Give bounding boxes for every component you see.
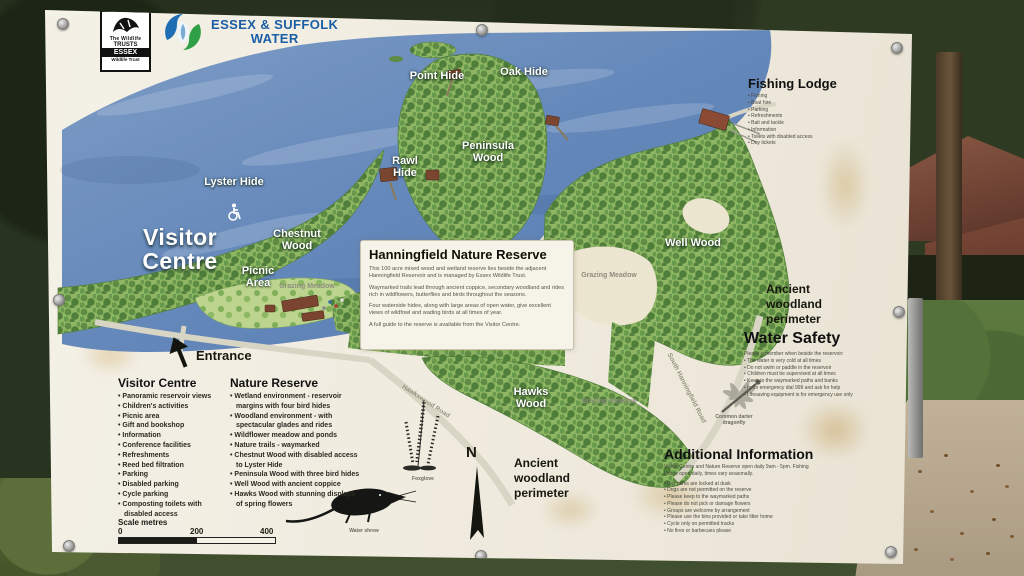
label-well-wood: Well Wood <box>664 237 722 249</box>
label-rawl-hide: Rawl Hide <box>382 155 428 180</box>
label-north: N <box>466 444 477 461</box>
mammal-caption: Water shrew <box>336 528 392 534</box>
visitor-centre-item: Disabled parking <box>118 480 230 490</box>
nature-reserve-items: Wetland environment - reservoir margins … <box>230 392 362 510</box>
label-visitor-centre: Visitor Centre <box>116 226 244 274</box>
visitor-centre-facilities: Visitor Centre Panoramic reservoir views… <box>118 376 230 519</box>
nature-reserve-item: Peninsula Wood with three bird hides <box>230 470 362 480</box>
nature-reserve-item: Hawks Wood with stunning displays of spr… <box>230 490 362 510</box>
photo-of-sign: The Wildlife TRUSTS ESSEX Wildlife Trust… <box>0 0 1024 576</box>
fishing-lodge-section: Fishing Lodge FishingBoat hireParkingRef… <box>748 76 873 147</box>
label-grazing-meadow-south: Grazing Meadow <box>580 398 638 407</box>
fishing-lodge-title: Fishing Lodge <box>748 76 873 91</box>
visitor-centre-item: Information <box>118 431 230 441</box>
visitor-centre-item: Cycle parking <box>118 490 230 500</box>
panel-paragraph: Four waterside hides, along with large a… <box>369 303 565 318</box>
label-entrance: Entrance <box>196 348 252 363</box>
water-safety-item: Lifesaving equipment is for emergency us… <box>744 392 886 399</box>
nature-reserve-item: Wetland environment - reservoir margins … <box>230 392 362 412</box>
description-panel: Hanningfield Nature Reserve This 100 acr… <box>360 240 574 350</box>
water-safety-item: Keep to the waymarked paths and banks <box>744 378 886 385</box>
water-safety-section: Water Safety Please remember when beside… <box>744 330 886 398</box>
wheelchair-icon <box>226 203 242 221</box>
island <box>410 42 456 58</box>
visitor-centre-list-title: Visitor Centre <box>118 376 230 390</box>
visitor-centre-item: Panoramic reservoir views <box>118 392 230 402</box>
nature-reserve-item: Chestnut Wood with disabled access to Ly… <box>230 451 362 471</box>
additional-info-item: Groups are welcome by arrangement <box>664 508 814 515</box>
panel-paragraph: Waymarked trails lead through ancient co… <box>369 285 565 300</box>
label-peninsula-wood: Peninsula Wood <box>448 140 528 165</box>
label-chestnut-wood: Chestnut Wood <box>258 228 336 253</box>
tree-trunk <box>936 52 962 332</box>
scale-label: Scale metres <box>118 518 288 527</box>
information-sign-board: The Wildlife TRUSTS ESSEX Wildlife Trust… <box>0 0 1024 576</box>
grazing-meadow-east <box>565 247 657 326</box>
wt-sub: Wildlife Trust <box>111 57 139 62</box>
nature-reserve-item: Woodland environment - with spectacular … <box>230 412 362 432</box>
nature-reserve-item: Well Wood with ancient coppice <box>230 480 362 490</box>
nature-reserve-list-title: Nature Reserve <box>230 376 362 390</box>
scale-tick-0: 0 <box>118 527 122 536</box>
label-hawks-wood: Hawks Wood <box>498 386 564 411</box>
label-ancient-woodland-south: Ancient woodland perimeter <box>514 456 594 501</box>
fishing-lodge-item: Information <box>748 127 873 134</box>
water-safety-item: In an emergency dial 999 and ask for hel… <box>744 385 886 392</box>
fishing-lodge-item: Parking <box>748 107 873 114</box>
water-safety-intro: Please remember when beside the reservoi… <box>744 351 886 358</box>
visitor-centre-item: Conference facilities <box>118 441 230 451</box>
bolt <box>891 42 903 54</box>
additional-info-item: Dogs are not permitted on the reserve <box>664 487 814 494</box>
water-safety-item: Do not swim or paddle in the reservoir <box>744 365 886 372</box>
bolt <box>893 306 905 318</box>
bolt <box>57 18 69 30</box>
bolt <box>53 294 65 306</box>
islet <box>389 56 403 62</box>
additional-info-section: Additional Information Visitor Centre an… <box>664 446 814 535</box>
panel-paragraph: A full guide to the reserve is available… <box>369 322 565 329</box>
dragonfly-caption: Common darter dragonfly <box>706 414 762 426</box>
scale-bar-graphic <box>118 537 276 544</box>
additional-info-title: Additional Information <box>664 446 814 462</box>
water-safety-item: Children must be supervised at all times <box>744 371 886 378</box>
label-point-hide: Point Hide <box>408 70 466 82</box>
additional-info-item: Please do not pick or damage flowers <box>664 501 814 508</box>
panel-paragraph: This 100 acre mixed wood and wetland res… <box>369 266 565 281</box>
water-safety-items: The water is very cold at all timesDo no… <box>744 358 886 399</box>
visitor-centre-item: Picnic area <box>118 412 230 422</box>
nature-reserve-item: Nature trails - waymarked <box>230 441 362 451</box>
north-arrow <box>470 466 484 540</box>
scale-tick-200: 200 <box>190 527 203 536</box>
fishing-lodge-item: Refreshments <box>748 113 873 120</box>
scale-bar: Scale metres 0 200 400 <box>118 518 288 544</box>
additional-info-item: No fires or barbecues please <box>664 528 814 535</box>
label-oak-hide: Oak Hide <box>498 66 550 78</box>
visitor-centre-item: Composting toilets with disabled access <box>118 500 230 520</box>
bolt <box>885 546 897 558</box>
fishing-lodge-item: Fishing <box>748 93 873 100</box>
water-swirl-icon <box>163 12 203 52</box>
fishing-lodge-item: Toilets with disabled access <box>748 134 873 141</box>
label-lyster-hide: Lyster Hide <box>202 176 266 188</box>
additional-info-item: Car parks are locked at dusk <box>664 481 814 488</box>
water-safety-title: Water Safety <box>744 330 886 348</box>
nature-reserve-features: Nature Reserve Wetland environment - res… <box>230 376 362 510</box>
additional-info-intro: Visitor Centre and Nature Reserve open d… <box>664 464 814 478</box>
fishing-lodge-items: FishingBoat hireParkingRefreshmentsBait … <box>748 93 873 147</box>
panel-title: Hanningfield Nature Reserve <box>369 247 565 262</box>
panel-paragraphs: This 100 acre mixed wood and wetland res… <box>369 266 565 329</box>
visitor-centre-item: Children's activities <box>118 402 230 412</box>
visitor-centre-items: Panoramic reservoir viewsChildren's acti… <box>118 392 230 519</box>
label-grazing-meadow-west: Grazing Meadow <box>278 283 336 292</box>
label-ancient-woodland-east: Ancient woodland perimeter <box>766 282 846 327</box>
fishing-lodge-item: Day tickets <box>748 140 873 147</box>
badger-icon <box>111 14 141 36</box>
fishing-lodge-item: Boat hire <box>748 100 873 107</box>
additional-info-item: Please use the bins provided or take lit… <box>664 514 814 521</box>
bolt <box>63 540 75 552</box>
additional-info-item: Please keep to the waymarked paths <box>664 494 814 501</box>
additional-info-item: Cycle only on permitted tracks <box>664 521 814 528</box>
wt-region: ESSEX <box>102 48 149 57</box>
visitor-centre-item: Parking <box>118 470 230 480</box>
plant-caption: Foxglove <box>398 476 448 482</box>
esw-water: WATER <box>211 32 338 46</box>
visitor-centre-item: Reed bed filtration <box>118 461 230 471</box>
bolt <box>476 24 488 36</box>
visitor-centre-item: Refreshments <box>118 451 230 461</box>
water-safety-item: The water is very cold at all times <box>744 358 886 365</box>
fishing-lodge-item: Bait and tackle <box>748 120 873 127</box>
additional-info-items: Car parks are locked at duskDogs are not… <box>664 481 814 535</box>
label-grazing-meadow-east: Grazing Meadow <box>580 272 638 281</box>
metal-post <box>908 298 923 458</box>
esw-name: ESSEX & SUFFOLK <box>211 18 338 32</box>
nature-reserve-item: Wildflower meadow and ponds <box>230 431 362 441</box>
visitor-centre-item: Gift and bookshop <box>118 421 230 431</box>
scale-tick-400: 400 <box>260 527 273 536</box>
wildlife-trusts-logo: The Wildlife TRUSTS ESSEX Wildlife Trust <box>100 10 151 72</box>
essex-suffolk-water-logo: ESSEX & SUFFOLK WATER <box>163 12 338 52</box>
